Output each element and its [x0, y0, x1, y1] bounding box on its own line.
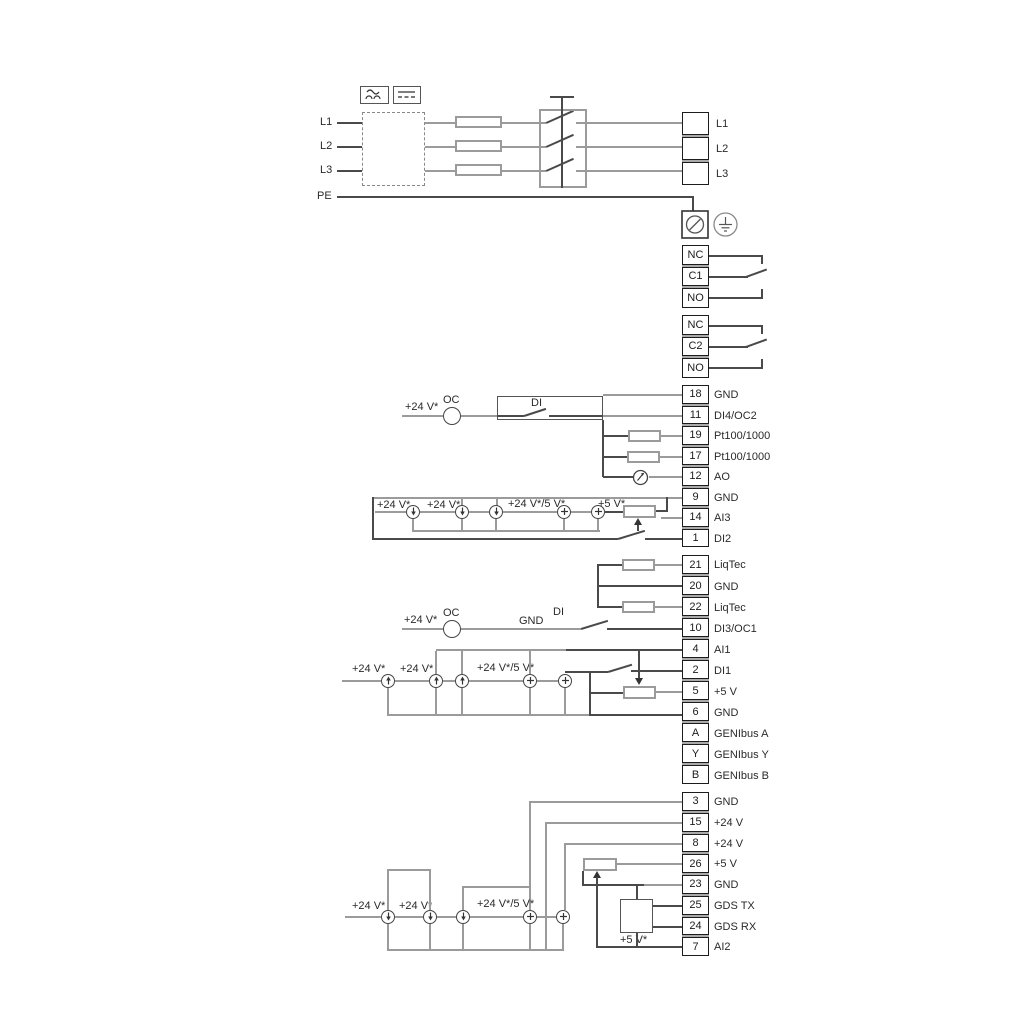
potentiometer-symbol — [623, 686, 656, 699]
wiper-arrow-icon — [635, 678, 643, 685]
fuse-symbol — [455, 140, 502, 152]
terminal-label: DI2 — [714, 533, 731, 545]
filter-box — [362, 112, 425, 186]
potentiometer-symbol — [623, 505, 656, 518]
terminal-cell: 10 — [682, 618, 709, 637]
current-source-icon — [381, 674, 395, 688]
wire-segment — [387, 688, 389, 714]
wire-segment — [597, 564, 622, 566]
terminal-cell: C2 — [682, 337, 709, 357]
io-terminal-block-3: 3 15 8 26 23 25 24 7 — [682, 792, 709, 956]
wire-segment — [412, 519, 414, 530]
terminal-cell: NC — [682, 315, 709, 335]
v24-label: +24 V* — [404, 614, 437, 626]
wire-segment — [761, 289, 763, 298]
terminal-cell: 18 — [682, 385, 709, 404]
plus-source-icon — [557, 505, 571, 519]
wire-segment — [372, 497, 374, 539]
wire-segment — [387, 714, 590, 716]
input-label-l1: L1 — [320, 116, 332, 128]
wire-segment — [589, 714, 682, 716]
terminal-cell: 22 — [682, 597, 709, 616]
gds-sensor-box — [620, 899, 653, 933]
wire-segment — [566, 649, 682, 651]
wire-segment — [603, 415, 682, 417]
wire-segment — [660, 456, 682, 458]
terminal-label: +5 V — [714, 858, 737, 870]
wire-segment — [462, 886, 529, 888]
wire-segment — [603, 476, 633, 478]
wire-segment — [653, 926, 682, 928]
current-source-icon — [429, 674, 443, 688]
wire-segment — [425, 122, 455, 124]
wire-segment — [470, 916, 523, 918]
terminal-cell: 12 — [682, 467, 709, 486]
wire-segment — [402, 415, 443, 417]
wire-segment — [607, 628, 682, 630]
terminal-label: LiqTec — [714, 559, 746, 571]
current-source-icon — [489, 505, 503, 519]
wire-segment — [462, 886, 464, 910]
terminal-cell: 17 — [682, 447, 709, 466]
terminal-cell: 7 — [682, 937, 709, 956]
wire-segment — [653, 905, 682, 907]
terminal-cell: 11 — [682, 406, 709, 425]
current-source-icon — [455, 505, 469, 519]
wire-segment — [469, 680, 523, 682]
io-terminal-block-1: 18 11 19 17 12 9 14 1 — [682, 385, 709, 547]
terminal-label: GND — [714, 879, 738, 891]
wire-segment — [461, 651, 463, 674]
current-source-icon — [381, 910, 395, 924]
terminal-cell: 26 — [682, 854, 709, 873]
wire-segment — [661, 517, 682, 519]
wire-segment — [708, 276, 748, 278]
wire-segment — [537, 916, 556, 918]
terminal-cell — [682, 137, 709, 160]
terminal-cell: Y — [682, 744, 709, 763]
terminal-cell: 2 — [682, 660, 709, 679]
terminal-cell: 9 — [682, 488, 709, 507]
terminal-cell — [682, 112, 709, 135]
wire-segment — [345, 916, 381, 918]
current-source-icon — [423, 910, 437, 924]
wire-segment — [582, 884, 644, 886]
current-source-icon — [455, 674, 469, 688]
wire-segment — [636, 884, 638, 899]
wiper-arrow-icon — [634, 518, 642, 525]
wire-segment — [429, 870, 431, 910]
wire-segment — [576, 122, 682, 124]
sensor-resistor-symbol — [622, 559, 655, 571]
wire-segment — [655, 606, 682, 608]
wire-segment — [469, 511, 489, 513]
wire-segment — [435, 688, 437, 714]
di-label: DI — [553, 606, 564, 618]
wire-segment — [372, 538, 618, 540]
wire-segment — [420, 511, 455, 513]
open-collector-icon — [443, 407, 461, 425]
wire-segment — [656, 691, 682, 693]
wire-segment — [495, 519, 497, 530]
terminal-cell: NC — [682, 245, 709, 265]
wire-segment — [638, 651, 640, 678]
terminal-cell: 3 — [682, 792, 709, 811]
terminal-label: DI1 — [714, 665, 731, 677]
terminal-label: DI4/OC2 — [714, 410, 757, 422]
wire-segment — [461, 688, 463, 714]
terminal-cell: A — [682, 723, 709, 742]
fuse-symbol — [455, 164, 502, 176]
terminal-label: GDS RX — [714, 921, 756, 933]
terminal-cell: 6 — [682, 702, 709, 721]
wire-segment — [402, 628, 443, 630]
input-label-pe: PE — [317, 190, 332, 202]
earth-ground-icon — [712, 211, 739, 243]
plus-source-icon — [523, 674, 537, 688]
wire-segment — [708, 297, 763, 299]
wire-segment — [387, 924, 389, 950]
wire-segment — [443, 680, 455, 682]
terminal-cell: NO — [682, 288, 709, 308]
wire-segment — [529, 801, 531, 910]
wire-segment — [425, 170, 455, 172]
mains-terminal-block — [682, 112, 709, 185]
wire-segment — [596, 946, 682, 948]
io-terminal-block-2: 21 20 22 10 4 2 5 6 A Y B — [682, 555, 709, 784]
wire-segment — [545, 822, 547, 950]
terminal-cell: 23 — [682, 875, 709, 894]
terminal-cell: 20 — [682, 576, 709, 595]
wire-segment — [649, 476, 682, 478]
wire-segment — [636, 933, 638, 947]
mains-out-label: L1 — [716, 118, 728, 130]
wire-segment — [643, 884, 682, 886]
wire-segment — [645, 538, 682, 540]
wire-segment — [618, 530, 645, 540]
terminal-label: GND — [714, 389, 738, 401]
wire-segment — [597, 519, 599, 530]
v24-label: +24 V* — [405, 401, 438, 413]
wire-segment — [461, 415, 497, 417]
contactor-symbol — [539, 109, 587, 188]
wire-segment — [425, 146, 455, 148]
input-label-l2: L2 — [320, 140, 332, 152]
terminal-label: DI3/OC1 — [714, 623, 757, 635]
terminal-label: GENIbus Y — [714, 749, 769, 761]
terminal-label: +24 V — [714, 817, 743, 829]
terminal-cell — [682, 162, 709, 185]
dc-icon — [393, 86, 421, 104]
wire-segment — [692, 196, 694, 211]
wire-segment — [576, 170, 682, 172]
terminal-label: GND — [714, 492, 738, 504]
di-label: DI — [531, 397, 542, 409]
wire-segment — [565, 671, 608, 673]
pe-screw-terminal-icon — [681, 210, 709, 244]
terminal-label: LiqTec — [714, 602, 746, 614]
wire-segment — [549, 415, 603, 417]
wire-segment — [708, 255, 763, 257]
wire-segment — [562, 924, 564, 950]
wire-segment — [608, 664, 632, 673]
relay2-block: NC C2 NO — [682, 315, 709, 378]
terminal-label: GND — [714, 707, 738, 719]
v24-label: +24 V* — [400, 663, 433, 675]
terminal-cell: B — [682, 765, 709, 784]
terminal-cell: NO — [682, 358, 709, 378]
wire-segment — [666, 497, 668, 511]
wire-segment — [603, 435, 628, 437]
current-source-icon — [456, 910, 470, 924]
terminal-cell: 21 — [682, 555, 709, 574]
terminal-label: GENIbus A — [714, 728, 768, 740]
wire-segment — [561, 97, 563, 188]
wire-segment — [571, 511, 591, 513]
wire-segment — [596, 877, 598, 947]
gnd-wire-label: GND — [519, 615, 543, 627]
terminal-label: AI1 — [714, 644, 731, 656]
mains-out-label: L3 — [716, 168, 728, 180]
plus-source-icon — [591, 505, 605, 519]
terminal-cell: 25 — [682, 896, 709, 915]
wire-segment — [564, 843, 566, 910]
wire-segment — [337, 196, 694, 198]
wire-segment — [546, 822, 682, 824]
wire-segment — [412, 530, 600, 532]
terminal-label: GND — [714, 796, 738, 808]
sensor-resistor-symbol — [622, 601, 655, 613]
mains-out-label: L2 — [716, 143, 728, 155]
terminal-cell: C1 — [682, 267, 709, 287]
v24-label: +24 V* — [352, 663, 385, 675]
wire-segment — [563, 519, 565, 530]
wire-segment — [576, 146, 682, 148]
wire-segment — [581, 620, 608, 630]
wire-segment — [602, 420, 604, 477]
wire-segment — [461, 628, 581, 630]
terminal-cell: 1 — [682, 529, 709, 548]
wire-segment — [564, 688, 566, 714]
wire-segment — [387, 870, 389, 910]
wire-segment — [435, 651, 437, 674]
wire-segment — [375, 511, 406, 513]
wire-segment — [605, 511, 623, 513]
wire-segment — [603, 456, 627, 458]
terminal-cell: 8 — [682, 834, 709, 853]
oc-label: OC — [443, 394, 460, 406]
wire-segment — [342, 680, 381, 682]
wire-segment — [565, 843, 682, 845]
wire-segment — [761, 255, 763, 264]
wire-segment — [637, 525, 639, 531]
current-source-icon — [406, 505, 420, 519]
plus-source-icon — [523, 910, 537, 924]
wire-segment — [655, 564, 682, 566]
terminal-cell: 5 — [682, 681, 709, 700]
terminal-label: GDS TX — [714, 900, 755, 912]
wire-segment — [337, 122, 362, 124]
wire-segment — [461, 519, 463, 530]
terminal-cell: 19 — [682, 426, 709, 445]
wire-segment — [661, 435, 682, 437]
input-label-l3: L3 — [320, 164, 332, 176]
terminal-label: +5 V — [714, 686, 737, 698]
terminal-cell: 15 — [682, 813, 709, 832]
fuse-symbol — [455, 116, 502, 128]
wire-segment — [537, 680, 558, 682]
wire-segment — [746, 269, 767, 278]
terminal-label: Pt100/1000 — [714, 430, 770, 442]
terminal-cell: 4 — [682, 639, 709, 658]
terminal-label: GND — [714, 581, 738, 593]
wire-segment — [761, 359, 763, 368]
wire-segment — [529, 688, 531, 714]
wire-segment — [591, 692, 623, 694]
wire-segment — [708, 346, 748, 348]
wire-segment — [597, 585, 682, 587]
wire-segment — [617, 863, 682, 865]
sensor-resistor-symbol — [628, 430, 661, 442]
potentiometer-symbol — [583, 858, 617, 871]
wire-segment — [530, 801, 682, 803]
terminal-label: AI3 — [714, 512, 731, 524]
terminal-label: +24 V — [714, 838, 743, 850]
wire-segment — [395, 916, 423, 918]
wire-segment — [337, 146, 362, 148]
terminal-cell: 24 — [682, 917, 709, 936]
plus-source-icon — [558, 674, 572, 688]
wire-segment — [597, 606, 622, 608]
wire-segment — [550, 96, 574, 98]
wire-segment — [746, 339, 767, 348]
terminal-label: Pt100/1000 — [714, 451, 770, 463]
wire-segment — [708, 325, 763, 327]
sensor-resistor-symbol — [627, 451, 660, 463]
open-collector-icon — [443, 620, 461, 638]
wire-segment — [529, 924, 531, 950]
terminal-label: AO — [714, 471, 730, 483]
v24v5-label: +24 V*/5 V* — [477, 898, 534, 910]
wire-segment — [436, 649, 566, 651]
wire-segment — [503, 511, 557, 513]
wiring-diagram: L1 L2 L3 PE — [0, 0, 1024, 1024]
wire-segment — [497, 415, 524, 417]
wire-segment — [337, 170, 362, 172]
wire-segment — [708, 367, 763, 369]
wire-segment — [462, 924, 464, 950]
ac-waveform-icon — [360, 86, 389, 104]
oc-label: OC — [443, 607, 460, 619]
wire-segment — [437, 916, 456, 918]
terminal-label: GENIbus B — [714, 770, 769, 782]
analog-output-meter-icon — [632, 469, 649, 491]
relay1-block: NC C1 NO — [682, 245, 709, 308]
wire-segment — [761, 325, 763, 334]
wire-segment — [529, 651, 531, 674]
wire-segment — [582, 871, 584, 885]
wire-segment — [387, 869, 431, 871]
wire-segment — [395, 680, 429, 682]
terminal-label: AI2 — [714, 941, 731, 953]
plus-source-icon — [556, 910, 570, 924]
wire-segment — [603, 394, 682, 396]
v5-label: +5 V* — [620, 934, 647, 946]
terminal-cell: 14 — [682, 508, 709, 527]
wire-segment — [429, 924, 431, 950]
v24-label: +24 V* — [352, 900, 385, 912]
v24v5-label: +24 V*/5 V* — [477, 662, 534, 674]
wire-segment — [387, 949, 564, 951]
